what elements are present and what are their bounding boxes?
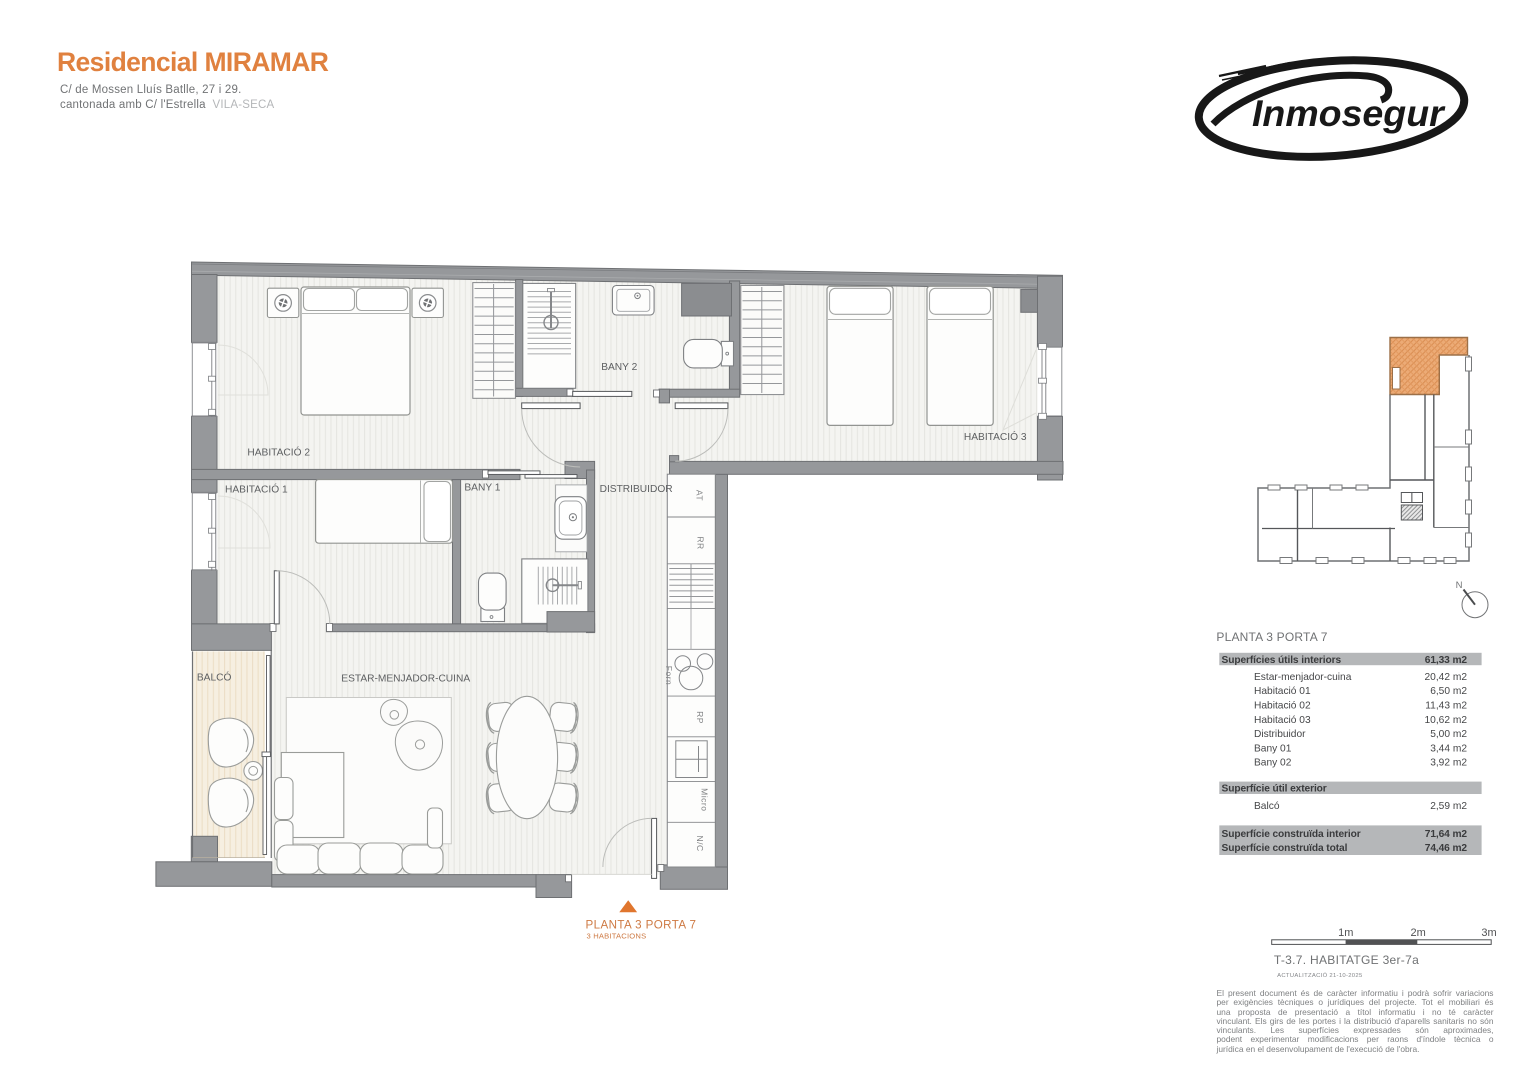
- svg-text:Estar-menjador-cuina: Estar-menjador-cuina: [1254, 672, 1352, 683]
- svg-text:Bany 02: Bany 02: [1254, 758, 1292, 769]
- svg-text:2m: 2m: [1411, 927, 1426, 939]
- svg-text:Superfície construïda interior: Superfície construïda interior: [1222, 829, 1361, 840]
- svg-text:BALCÓ: BALCÓ: [197, 671, 232, 684]
- svg-text:BANY 2: BANY 2: [601, 362, 637, 373]
- svg-text:RP: RP: [695, 711, 705, 724]
- svg-text:6,50 m2: 6,50 m2: [1430, 686, 1467, 697]
- svg-text:3,92 m2: 3,92 m2: [1430, 758, 1467, 769]
- svg-text:RR: RR: [696, 536, 706, 549]
- svg-text:3m: 3m: [1481, 927, 1496, 939]
- svg-text:Superfície construïda total: Superfície construïda total: [1222, 843, 1348, 854]
- svg-text:71,64 m2: 71,64 m2: [1425, 829, 1468, 840]
- svg-text:DISTRIBUIDOR: DISTRIBUIDOR: [600, 484, 673, 495]
- svg-text:PLANTA 3 PORTA 7: PLANTA 3 PORTA 7: [1216, 630, 1327, 644]
- svg-text:Distribuidor: Distribuidor: [1254, 729, 1306, 740]
- svg-text:T-3.7. HABITATGE 3er-7a: T-3.7. HABITATGE 3er-7a: [1274, 953, 1419, 967]
- svg-text:Inmosegur: Inmosegur: [1252, 92, 1446, 134]
- svg-text:61,33 m2: 61,33 m2: [1425, 655, 1468, 666]
- svg-text:HABITACIÓ 1: HABITACIÓ 1: [225, 483, 288, 496]
- svg-text:HABITACIÓ 3: HABITACIÓ 3: [964, 430, 1027, 443]
- svg-text:Superfícies útils interiors: Superfícies útils interiors: [1222, 655, 1342, 666]
- svg-text:10,62 m2: 10,62 m2: [1425, 715, 1468, 726]
- svg-text:Habitació 02: Habitació 02: [1254, 701, 1311, 712]
- svg-text:2,59 m2: 2,59 m2: [1430, 801, 1467, 812]
- svg-text:Superfície útil exterior: Superfície útil exterior: [1222, 784, 1327, 795]
- svg-text:Habitació 01: Habitació 01: [1254, 686, 1311, 697]
- svg-text:ESTAR-MENJADOR-CUINA: ESTAR-MENJADOR-CUINA: [341, 674, 470, 685]
- svg-text:74,46 m2: 74,46 m2: [1425, 843, 1468, 854]
- svg-text:5,00 m2: 5,00 m2: [1430, 729, 1467, 740]
- svg-text:3,44 m2: 3,44 m2: [1430, 743, 1467, 754]
- svg-text:PLANTA 3 PORTA 7: PLANTA 3 PORTA 7: [586, 919, 697, 932]
- svg-text:Micro: Micro: [700, 788, 710, 811]
- svg-text:N/C: N/C: [695, 835, 705, 851]
- svg-text:ACTUALITZACIÓ 21-10-2025: ACTUALITZACIÓ 21-10-2025: [1277, 972, 1363, 979]
- svg-text:Balcó: Balcó: [1254, 801, 1280, 812]
- svg-text:AT: AT: [695, 490, 705, 501]
- svg-text:3 HABITACIONS: 3 HABITACIONS: [587, 931, 647, 940]
- svg-text:N: N: [1456, 580, 1463, 591]
- svg-text:HABITACIÓ 2: HABITACIÓ 2: [247, 445, 310, 458]
- svg-text:20,42 m2: 20,42 m2: [1425, 672, 1468, 683]
- svg-text:Bany 01: Bany 01: [1254, 743, 1292, 754]
- svg-text:Forn: Forn: [664, 666, 674, 685]
- svg-text:BANY 1: BANY 1: [464, 483, 500, 494]
- svg-text:1m: 1m: [1338, 927, 1353, 939]
- svg-text:Habitació 03: Habitació 03: [1254, 715, 1311, 726]
- svg-text:11,43 m2: 11,43 m2: [1425, 701, 1467, 712]
